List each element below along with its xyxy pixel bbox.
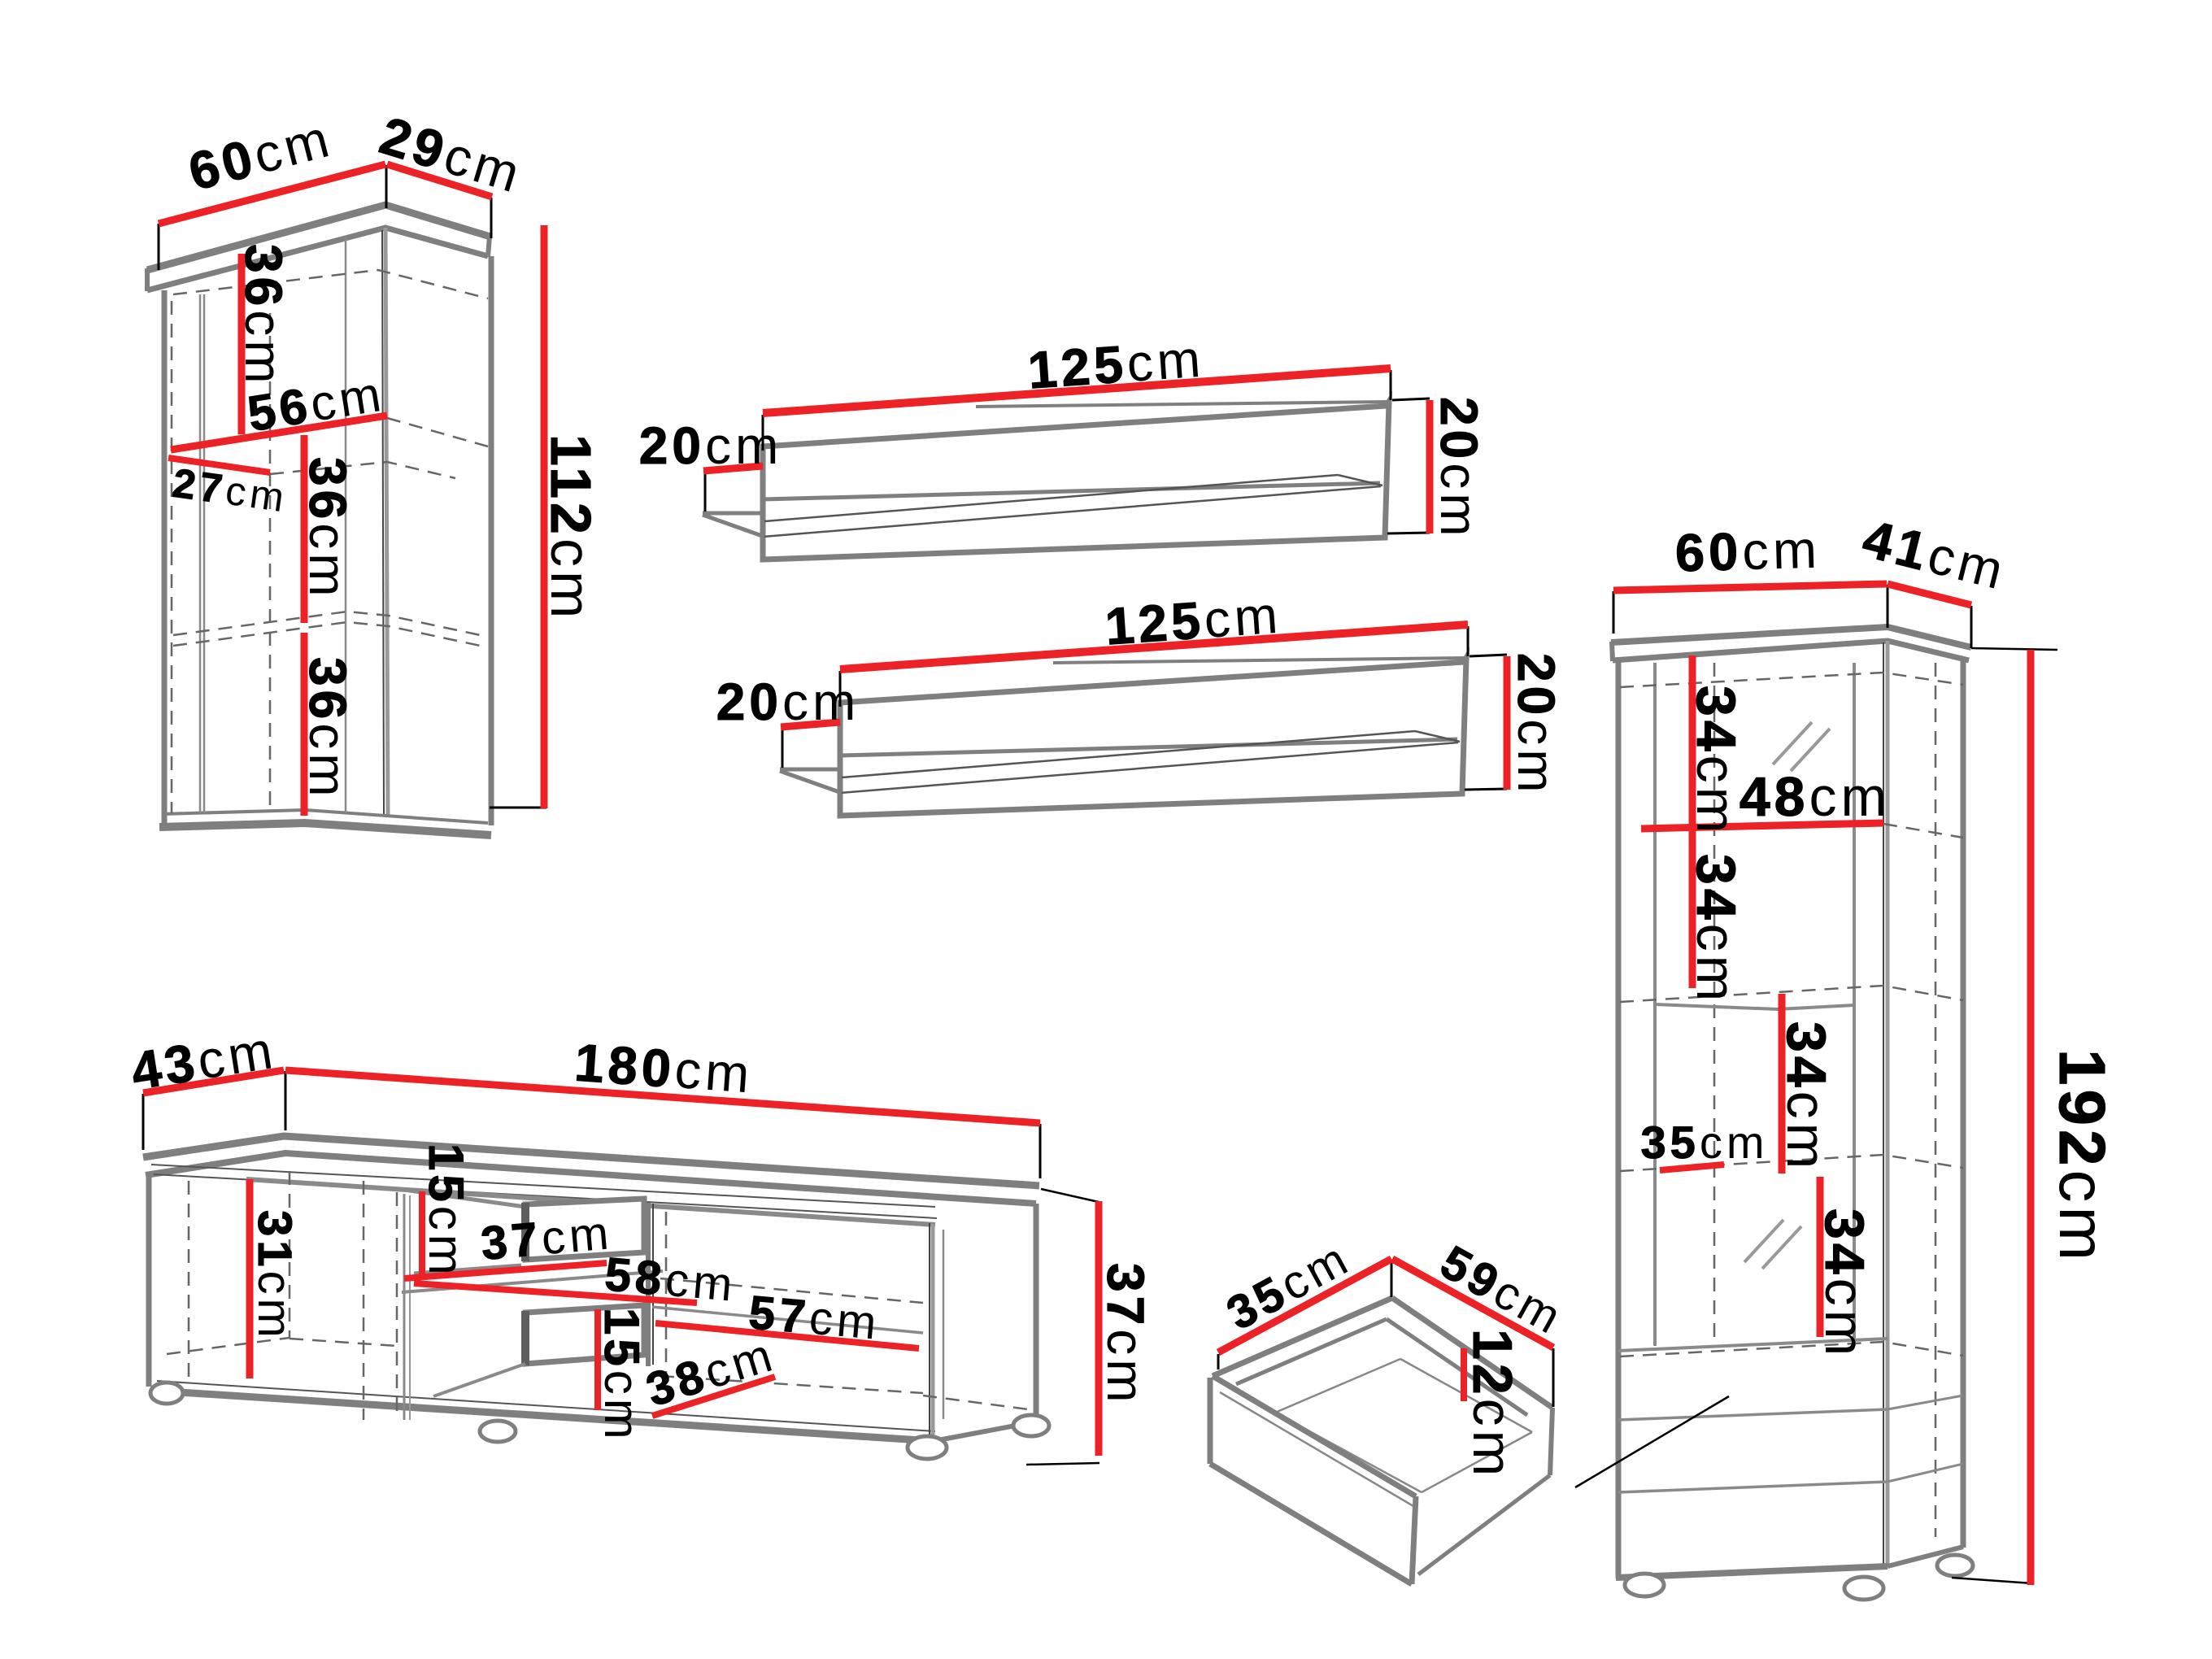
svg-text:34cm: 34cm	[1685, 686, 1747, 837]
svg-text:34cm: 34cm	[1685, 854, 1747, 1005]
svg-text:15cm: 15cm	[594, 1308, 649, 1443]
svg-text:36cm: 36cm	[298, 457, 357, 601]
svg-text:34cm: 34cm	[1814, 1208, 1875, 1360]
svg-text:31cm: 31cm	[248, 1210, 301, 1342]
svg-text:180cm: 180cm	[573, 1032, 755, 1104]
svg-text:36cm: 36cm	[234, 244, 293, 388]
svg-text:37cm: 37cm	[1096, 1263, 1155, 1407]
svg-text:35cm: 35cm	[1641, 1117, 1769, 1168]
svg-text:12cm: 12cm	[1461, 1329, 1523, 1480]
svg-text:34cm: 34cm	[1775, 1021, 1837, 1173]
svg-text:48cm: 48cm	[1740, 766, 1891, 828]
svg-text:15cm: 15cm	[419, 1143, 473, 1279]
svg-text:60cm: 60cm	[1674, 520, 1822, 583]
svg-text:112cm: 112cm	[539, 434, 603, 622]
svg-text:36cm: 36cm	[298, 657, 357, 801]
svg-text:192cm: 192cm	[2046, 1049, 2118, 1265]
